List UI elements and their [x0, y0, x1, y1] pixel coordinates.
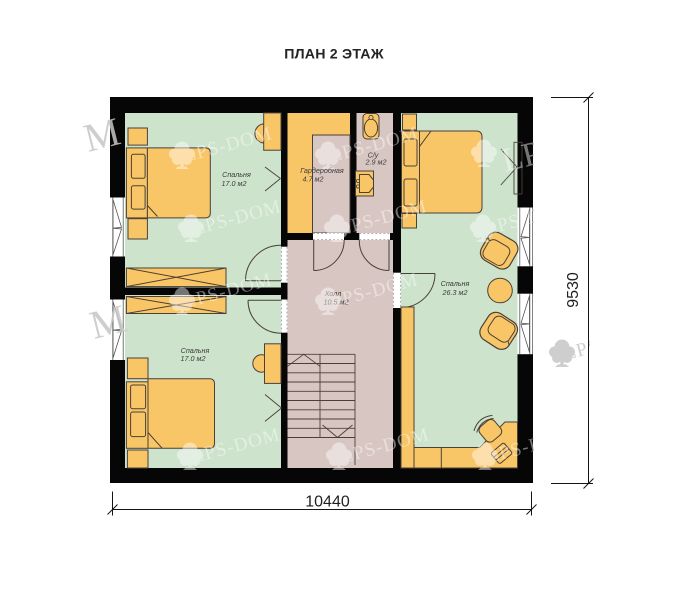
- svg-text:10440: 10440: [305, 494, 350, 511]
- svg-text:Спальня: Спальня: [222, 170, 251, 179]
- svg-text:2.9 м2: 2.9 м2: [365, 158, 387, 167]
- svg-text:26.3 м2: 26.3 м2: [442, 288, 468, 297]
- svg-text:9530: 9530: [565, 272, 582, 308]
- svg-text:17.0 м2: 17.0 м2: [222, 179, 247, 188]
- svg-text:ПЛАН 2 ЭТАЖ: ПЛАН 2 ЭТАЖ: [284, 47, 384, 63]
- svg-text:17.0 м2: 17.0 м2: [181, 354, 206, 363]
- svg-text:Спальня: Спальня: [441, 279, 470, 288]
- svg-text:4.7 м2: 4.7 м2: [303, 175, 324, 184]
